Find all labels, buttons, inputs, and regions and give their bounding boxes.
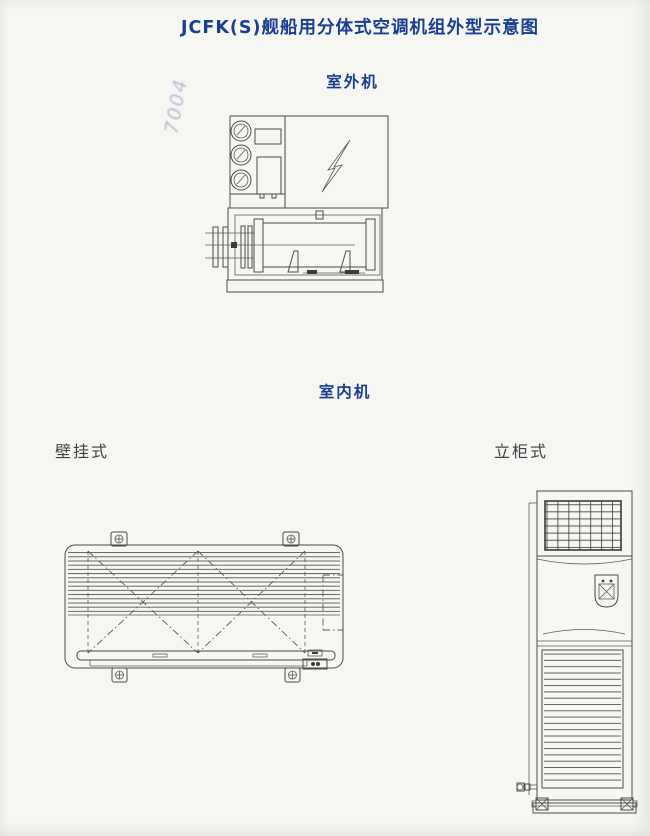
air-outlet-louvre-bar [77, 651, 335, 666]
intake-louvre-grille [68, 549, 340, 615]
cylinder-support-feet [288, 251, 365, 274]
mounting-bracket [285, 668, 300, 682]
pipe-flange-connections [205, 226, 254, 268]
mounting-bracket [112, 668, 127, 682]
wall-unit-drawing [55, 518, 350, 690]
outdoor-unit-section-label: 室外机 [0, 70, 650, 92]
wall-mounted-type-label: 壁挂式 [55, 438, 109, 462]
pressure-gauge-icon [231, 145, 251, 165]
mounting-bracket [111, 532, 127, 546]
indoor-unit-section-label: 室内机 [0, 380, 650, 402]
page-title: JCFK(S)舰船用分体式空调机组外型示意图 [0, 14, 650, 39]
outdoor-unit-drawing [195, 100, 395, 300]
pressure-gauge-icon [231, 121, 251, 141]
top-air-outlet-grille [537, 501, 632, 564]
pressure-gauge-icon [231, 170, 251, 190]
lightning-bolt-icon [322, 140, 350, 192]
floor-cabinet-type-label: 立柜式 [494, 438, 548, 462]
drain-pipe-fitting [517, 783, 537, 791]
compressor-control-box [257, 157, 281, 198]
cabinet-unit-drawing [503, 483, 650, 833]
outdoor-unit-base [227, 280, 383, 292]
control-panel-badge [595, 575, 618, 607]
condenser-compartment [228, 208, 382, 280]
terminal-box [255, 129, 281, 144]
front-intake-louvre [537, 630, 632, 789]
mounting-bracket [283, 532, 299, 546]
outdoor-unit-cabinet [230, 116, 388, 208]
document-page: JCFK(S)舰船用分体式空调机组外型示意图 7004 室外机 室内机 壁挂式 … [0, 0, 650, 836]
